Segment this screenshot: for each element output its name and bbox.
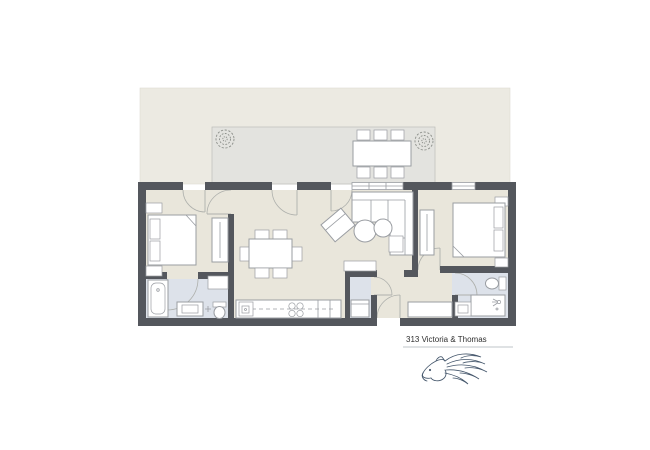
side-table: [389, 236, 403, 252]
washing-machine: [351, 300, 369, 317]
coffee-table: [374, 219, 392, 237]
outdoor-dining-set: [353, 130, 411, 178]
kitchen: [236, 300, 341, 318]
chair: [273, 268, 287, 278]
dining-table: [249, 239, 292, 268]
horse-flourish-logo: [422, 354, 487, 384]
wall-right: [508, 182, 516, 326]
nightstand: [495, 258, 508, 267]
wall-left: [138, 182, 146, 326]
toilet-tank: [499, 277, 506, 290]
nightstand: [146, 266, 162, 276]
floor-plan-page: 313 Victoria & Thomas: [0, 0, 650, 450]
pillow: [494, 230, 503, 251]
bathroom-cabinet: [208, 276, 228, 289]
toilet: [214, 307, 225, 319]
pillow: [150, 219, 160, 239]
plan-title: 313 Victoria & Thomas: [406, 335, 487, 344]
sideboard: [344, 261, 376, 271]
shower: [471, 295, 505, 316]
toilet: [486, 278, 499, 289]
chair: [292, 247, 302, 261]
coffee-table: [354, 220, 376, 242]
outdoor-table: [353, 141, 411, 166]
chair: [255, 268, 269, 278]
pillow: [150, 241, 160, 261]
nightstand: [146, 203, 162, 213]
pillow: [494, 207, 503, 228]
floor-plan: 313 Victoria & Thomas: [0, 0, 650, 450]
hallway-cabinet: [408, 302, 452, 317]
